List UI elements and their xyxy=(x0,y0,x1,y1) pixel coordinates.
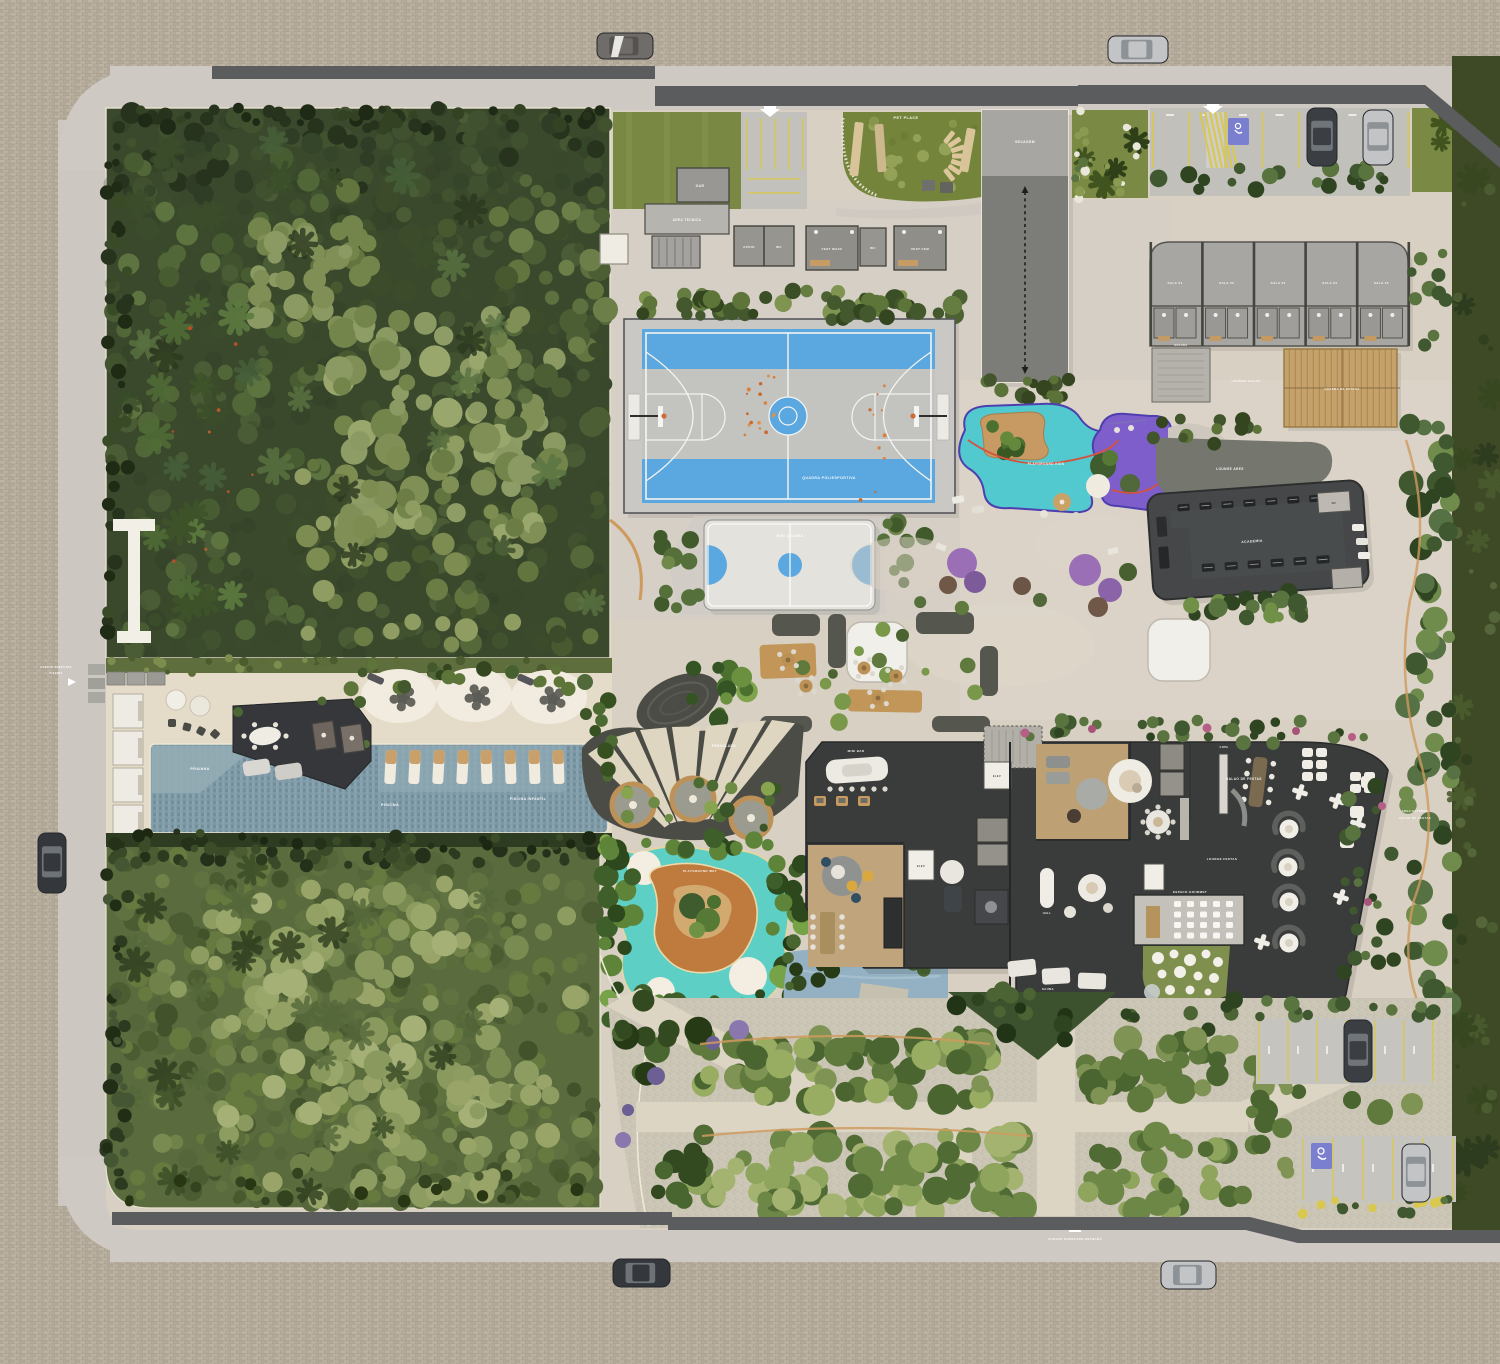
svg-text:SALAO DE FESTAS: SALAO DE FESTAS xyxy=(1226,777,1262,781)
svg-text:MINI BAR: MINI BAR xyxy=(848,749,865,753)
svg-text:ELEV: ELEV xyxy=(993,774,1001,778)
svg-text:QUADRA DE PETECA: QUADRA DE PETECA xyxy=(1324,387,1359,391)
svg-text:GAR: GAR xyxy=(696,184,705,188)
svg-text:HALL: HALL xyxy=(1043,911,1052,915)
svg-text:LOUNGE SALAS: LOUNGE SALAS xyxy=(1232,379,1261,383)
svg-text:AREA EXTERNA: AREA EXTERNA xyxy=(1402,809,1429,813)
svg-text:PLAYGROUND WET: PLAYGROUND WET xyxy=(683,869,717,873)
svg-text:PET PLACE: PET PLACE xyxy=(894,116,919,120)
svg-text:SALAO DE FESTAS: SALAO DE FESTAS xyxy=(1399,816,1431,820)
svg-text:COPA: COPA xyxy=(1220,745,1229,749)
svg-text:PLAYGROUND KIDS: PLAYGROUND KIDS xyxy=(1028,462,1065,466)
svg-text:SALA 05: SALA 05 xyxy=(1374,281,1389,285)
svg-text:SALA 02: SALA 02 xyxy=(1219,281,1234,285)
svg-text:ACESSO PEDESTRE: ACESSO PEDESTRE xyxy=(40,665,72,669)
svg-text:VEST FEM: VEST FEM xyxy=(911,247,929,251)
svg-text:PISCINA INFANTIL: PISCINA INFANTIL xyxy=(510,797,546,801)
svg-text:QUADRA POLIESPORTIVA: QUADRA POLIESPORTIVA xyxy=(802,476,856,480)
svg-text:PISCINA: PISCINA xyxy=(381,803,399,807)
svg-text:ESCADA: ESCADA xyxy=(1174,343,1187,347)
svg-text:MINI QUADRA: MINI QUADRA xyxy=(777,534,804,538)
svg-text:LOUNGE ARES: LOUNGE ARES xyxy=(1216,467,1244,471)
svg-text:LOUNGE FESTAS: LOUNGE FESTAS xyxy=(1207,857,1237,861)
svg-text:PISCINA: PISCINA xyxy=(49,671,62,675)
svg-text:SALA 04: SALA 04 xyxy=(1322,281,1337,285)
svg-text:APOIO: APOIO xyxy=(743,245,755,249)
svg-text:WC: WC xyxy=(1332,502,1337,505)
svg-text:ACESSO PEDESTRE ENTRADA: ACESSO PEDESTRE ENTRADA xyxy=(1048,1237,1103,1241)
svg-text:WC: WC xyxy=(870,246,876,250)
svg-text:ESPACO GOURMET: ESPACO GOURMET xyxy=(1173,890,1207,894)
svg-text:PRAINHA: PRAINHA xyxy=(190,767,209,771)
svg-text:SECAGEM: SECAGEM xyxy=(1015,140,1035,144)
svg-text:SALA 01: SALA 01 xyxy=(1167,281,1182,285)
svg-text:ELEV: ELEV xyxy=(917,864,925,868)
svg-text:WC: WC xyxy=(776,245,782,249)
svg-text:VEST MASC: VEST MASC xyxy=(821,247,843,251)
svg-text:PERGOLADO: PERGOLADO xyxy=(712,744,736,748)
svg-text:SAUNA: SAUNA xyxy=(1042,987,1054,991)
svg-text:AREA TECNICA: AREA TECNICA xyxy=(673,218,702,222)
svg-text:SALA 03: SALA 03 xyxy=(1271,281,1286,285)
